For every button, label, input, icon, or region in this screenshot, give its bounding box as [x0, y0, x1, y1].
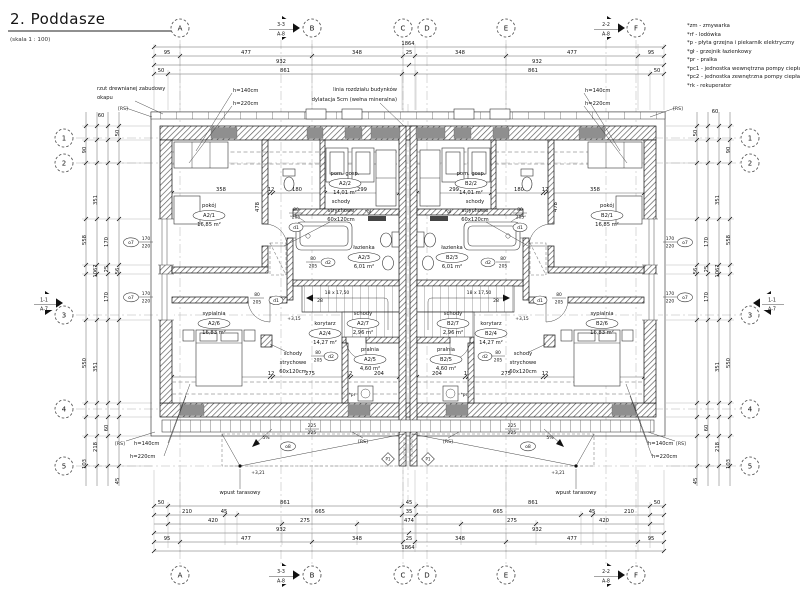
- dim-top-row2-text: 932: [276, 59, 286, 65]
- window-o7-width-text: 170: [666, 236, 675, 242]
- attic-ladder-hatch: [261, 335, 272, 347]
- washing-machine: [358, 386, 373, 401]
- bathroom-radiator: [368, 216, 386, 221]
- room-numbers-b-text: B2/4: [485, 331, 498, 337]
- dim-bottom-row5: 954773482534847795: [164, 536, 655, 542]
- door-height-text: 205: [499, 264, 508, 270]
- height-220-note-text: h=220cm: [233, 101, 258, 107]
- section-sheet-a8-text: A-8: [277, 579, 285, 585]
- dim-right-column-text: 351: [715, 362, 721, 372]
- section-sheet-a8-text: A-8: [602, 32, 610, 38]
- room-names-text: pom. gosp.: [331, 171, 360, 177]
- room-areas-text: 2,96 m²: [353, 330, 373, 336]
- room-areas-text: 6,01 m²: [442, 264, 462, 270]
- attic-stairs-note-2-text: strychowe: [280, 360, 307, 366]
- dim-bottom-row2-text: 210: [624, 509, 634, 515]
- dresser: [616, 196, 642, 224]
- dim-top-row1-text: 477: [241, 50, 251, 56]
- dim-bottom-row3-text: 474: [404, 518, 415, 524]
- window-o8-size-text: 225: [308, 430, 317, 436]
- dim-left-column-text: 218: [93, 442, 99, 452]
- dim-right-column-text: 218: [715, 442, 721, 452]
- equipment-legend-text: *rf - lodówka: [687, 31, 721, 38]
- room-names-text: pokój: [600, 202, 614, 209]
- dim-top-row1-text: 477: [567, 50, 577, 56]
- dim-bottom-row3-text: 275: [507, 518, 517, 524]
- grid-row-labels-text: 3: [748, 312, 752, 320]
- grid-column-labels-text: F: [634, 572, 638, 580]
- grid-row-labels-text: 5: [62, 463, 66, 471]
- dim-left-column-text: 1067: [93, 264, 99, 277]
- equipment-legend: *zm - zmywarka*rf - lodówka*p - płyta gr…: [687, 23, 800, 89]
- section-2-2-text: 2-2: [602, 22, 610, 28]
- party-wall-left: [399, 126, 406, 466]
- dim-bottom-row1-text: 50: [654, 500, 661, 506]
- eaves-note-2-text: okapu: [97, 95, 113, 101]
- dim-bottom-row5-text: 25: [406, 536, 413, 542]
- section-sheet-a7-text: A-7: [768, 307, 776, 313]
- room-numbers-a-text: A2/4: [319, 331, 332, 337]
- dim-bottom-row5-text: 348: [455, 536, 465, 542]
- grid-column-labels-text: A: [178, 25, 183, 33]
- dim-interior-top-text: 12: [542, 187, 549, 193]
- dim-top-row1: 954773482534847795: [164, 50, 655, 56]
- door-width-text: 80: [293, 207, 299, 213]
- grid-column-labels-text: B: [310, 25, 315, 33]
- room-areas-text: 4,60 m²: [360, 366, 380, 372]
- dim-left-column-text: 45: [115, 478, 121, 485]
- door-marker-d1-text: d1: [293, 225, 299, 231]
- dim-interior-top-text: 358: [216, 187, 226, 193]
- washer-tag-text: *pr: [349, 392, 356, 398]
- door-marker-d2-text: d2: [328, 354, 334, 360]
- section-1-1-text: 1-1: [40, 298, 48, 304]
- floor-level-text: +3,15: [287, 316, 301, 322]
- window-o7-height-text: 220: [666, 299, 675, 305]
- grid-column-labels-text: C: [401, 25, 406, 33]
- dim-left-column-text: 56: [115, 268, 121, 275]
- window-o7-height-text: 220: [142, 299, 151, 305]
- attic-stairs-note-3-text: 60x120cm: [461, 217, 488, 223]
- roller-shutter-tag-text: [RS]: [358, 439, 368, 445]
- window-o7-width-text: 170: [666, 291, 675, 297]
- dim-interior-top-text: 358: [590, 187, 600, 193]
- terrace-drain-note-text: wpust tarasowy: [556, 490, 597, 496]
- section-1-1-text: 1-1: [768, 298, 776, 304]
- expansion-joint-note-2-text: dylatacja 5cm (wełna mineralna): [312, 97, 397, 103]
- room-names-text: pralnia: [437, 347, 455, 353]
- window-marker-o7-text: o7: [128, 240, 134, 246]
- room-names-text: pokój: [202, 202, 216, 209]
- stair-going-label-text: 28: [493, 298, 499, 304]
- door-width-text: 80: [556, 292, 562, 298]
- floor-plan-drawing: 2. Poddasze (skala 1 : 100) *zm - zmywar…: [0, 0, 800, 600]
- terrace-panel-label-text: P1: [386, 457, 391, 462]
- attic-stairs-note-3-text: 60x120cm: [509, 369, 536, 375]
- room-names-text: łazienka: [353, 245, 374, 251]
- eaves-note: rzut drewnianej zabudowy: [97, 86, 165, 92]
- door-height-text: 205: [314, 358, 323, 364]
- room-areas-text: 16,83 m²: [202, 330, 226, 336]
- roller-shutter-tag-text: [RS]: [118, 106, 128, 112]
- door-height-text: 205: [253, 300, 262, 306]
- dim-left-column-text: 351: [93, 362, 99, 372]
- door-height-text: 205: [494, 358, 503, 364]
- grid-column-labels-text: C: [401, 572, 406, 580]
- attic-ladder-hatch: [544, 335, 555, 347]
- dim-bottom-row5-text: 477: [567, 536, 577, 542]
- nightstand: [183, 330, 194, 341]
- dim-top-row1-text: 25: [406, 50, 413, 56]
- dim-left-column-text: 550: [82, 358, 88, 368]
- nightstand: [244, 330, 255, 341]
- height-140-note-text: h=140cm: [134, 441, 159, 447]
- washing-machine: [443, 386, 458, 401]
- dim-right-column-text: 25: [704, 266, 710, 273]
- attic-stairs-note-3-text: 60x120cm: [327, 217, 354, 223]
- dim-bottom-row1-text: 50: [158, 500, 165, 506]
- door-marker-d1-text: d1: [273, 298, 279, 304]
- dim-left-column-text: 170: [104, 292, 110, 302]
- window-o7-width-text: 170: [142, 236, 151, 242]
- dim-bottom-row3-text: 420: [599, 518, 609, 524]
- dim-room-height-text: 478: [255, 202, 261, 212]
- towel-radiator-tag-text: *gł: [365, 209, 372, 215]
- dim-right-column-text: 170: [704, 292, 710, 302]
- dim-bottom-total: 1864: [401, 545, 415, 551]
- room-numbers-a-text: A2/7: [357, 321, 369, 327]
- section-sheet-a8-text: A-8: [277, 32, 285, 38]
- equipment-legend-text: *pr - pralka: [687, 57, 717, 63]
- attic-stairs-note-1-text: schody: [514, 351, 532, 357]
- attic-stairs-note-1-text: schody: [284, 351, 302, 357]
- height-140-note-text: h=140cm: [233, 88, 258, 94]
- dim-bottom-total-text: 1864: [401, 545, 415, 551]
- bath-wc-bowl: [425, 233, 436, 247]
- room-numbers-b-text: B2/7: [447, 321, 459, 327]
- roller-shutter-tag-text: [RS]: [443, 439, 453, 445]
- room-areas-text: 14,27 m²: [313, 340, 337, 346]
- room-areas-text: 14,01 m²: [459, 190, 483, 196]
- room-numbers-b-text: B2/2: [465, 181, 477, 187]
- wc-tank: [283, 169, 295, 176]
- door-width-text: 80: [517, 207, 523, 213]
- grid-row-labels-text: 2: [748, 160, 752, 168]
- dim-bottom-row3-text: 275: [300, 518, 310, 524]
- roller-shutter-tag-text: [RS]: [115, 441, 125, 447]
- dim-bottom-row1: 508614586150: [158, 500, 661, 506]
- room-numbers-b-text: B2/3: [446, 255, 458, 261]
- dim-interior-top-text: 299: [357, 187, 367, 193]
- room-names-text: sypialnia: [202, 311, 225, 317]
- height-220-note-text: h=220cm: [585, 101, 610, 107]
- room-numbers-a-text: A2/3: [358, 255, 370, 261]
- section-3-3-text: 3-3: [277, 22, 285, 28]
- dim-top-row2-text: 932: [532, 59, 542, 65]
- wc-bowl: [522, 177, 532, 191]
- dim-top-row1-text: 348: [455, 50, 465, 56]
- grid-column-labels-text: D: [424, 572, 429, 580]
- room-numbers-b-text: B2/5: [440, 357, 452, 363]
- dim-bottom-row4: 932932: [276, 527, 542, 533]
- height-140-note-text: h=140cm: [585, 88, 610, 94]
- scale-note: (skala 1 : 100): [10, 37, 50, 43]
- room-names-text: pom. gosp.: [457, 171, 486, 177]
- dim-right-column-text: 45: [693, 478, 699, 485]
- room-names-text: korytarz: [480, 321, 502, 327]
- room-areas-text: 4,60 m²: [436, 366, 456, 372]
- attic-stairs-note-2-text: strychowe: [510, 360, 537, 366]
- door-marker-d2-text: d2: [482, 354, 488, 360]
- grid-column-labels-text: F: [634, 25, 638, 33]
- washer-tag-text: *pr: [461, 392, 468, 398]
- section-sheet-a8-text: A-8: [602, 579, 610, 585]
- dim-left-column-text: 170: [104, 237, 110, 247]
- nightstand: [561, 330, 572, 341]
- dim-bottom-row3: 420275474275420: [208, 518, 609, 524]
- dim-top-row3-text: 50: [654, 68, 661, 74]
- grid-row-labels-text: 1: [748, 135, 752, 143]
- grid-row-labels-text: 3: [62, 312, 66, 320]
- door-marker-d2-text: d2: [485, 260, 491, 266]
- section-2-2-text: 2-2: [602, 569, 610, 575]
- attic-stairs-note-2-text: strychowe: [462, 208, 489, 214]
- dim-top-row1-text: 95: [164, 50, 171, 56]
- room-areas-text: 2,96 m²: [443, 330, 463, 336]
- window-o7-height-text: 220: [666, 244, 675, 250]
- dim-top-row3-text: 50: [158, 68, 165, 74]
- wardrobe: [588, 142, 642, 168]
- stair-run-label-text: 18 x 17,50: [325, 290, 350, 296]
- attic-stairs-note-3-text: 60x120cm: [279, 369, 306, 375]
- door-height-text: 205: [516, 215, 525, 221]
- dim-interior-bottom-text: 12: [268, 371, 275, 377]
- dim-bottom-row2-text: 210: [182, 509, 192, 515]
- title-block: 2. Poddasze (skala 1 : 100): [8, 10, 186, 43]
- page-title: 2. Poddasze: [10, 10, 105, 28]
- dim-bottom-row1-text: 861: [528, 500, 538, 506]
- equipment-legend-text: *gł - grzejnik łazienkowy: [687, 49, 752, 55]
- equipment-legend-text: *zm - zmywarka: [687, 23, 730, 29]
- room-areas-text: 6,01 m²: [354, 264, 374, 270]
- dim-top-row3-text: 861: [528, 68, 538, 74]
- window-marker-o8-text: o8: [525, 444, 531, 450]
- window-o7-width-text: 170: [142, 291, 151, 297]
- dim-bottom-row5-text: 348: [352, 536, 362, 542]
- dim-interior-top-text: 180: [514, 187, 524, 193]
- expansion-joint-note-text: linia rozdziału budynków: [333, 86, 398, 93]
- stair-run-label-text: 18 x 17,50: [467, 290, 492, 296]
- dim-left-column-text: 50: [115, 130, 121, 137]
- dim-bottom-row2-text: 665: [315, 509, 325, 515]
- room-names-text: schody: [354, 311, 372, 317]
- eaves-note-text: rzut drewnianej zabudowy: [97, 86, 165, 92]
- dim-bottom-row2-text: 45: [221, 509, 228, 515]
- dim-left-column-text: 90: [82, 147, 88, 154]
- dim-right-column-text: 60: [712, 109, 719, 115]
- dim-bottom-row4-text: 932: [276, 527, 286, 533]
- dim-interior-top-text: 180: [292, 187, 302, 193]
- room-numbers-a-text: A2/2: [339, 181, 351, 187]
- dim-interior-top-text: 12: [268, 187, 275, 193]
- room-names-text: sypialnia: [590, 311, 613, 317]
- door-width-text: 80: [254, 292, 260, 298]
- room-areas-text: 16,85 m²: [595, 222, 619, 228]
- attic-stairs-note-1-text: schody: [332, 199, 350, 205]
- door-height-text: 205: [309, 264, 318, 270]
- roller-shutter-tag-text: [RS]: [673, 106, 683, 112]
- grid-column-labels-text: E: [504, 572, 508, 580]
- bath-wc-bowl: [381, 233, 392, 247]
- dim-top-row2: 932932: [276, 59, 542, 65]
- slope-label-text: 5%: [262, 435, 270, 441]
- dim-left-column-text: 351: [93, 195, 99, 205]
- grid-row-labels-text: 5: [748, 463, 752, 471]
- dim-interior-top-text: 299: [449, 187, 459, 193]
- dim-left-column-text: 558: [82, 235, 88, 245]
- roller-shutter-tag-text: [RS]: [676, 441, 686, 447]
- door-height-text: 205: [555, 300, 564, 306]
- window-marker-o8-text: o8: [285, 444, 291, 450]
- dim-bottom-row1-text: 45: [406, 500, 413, 506]
- dim-bottom-row5-text: 477: [241, 536, 251, 542]
- height-220-note-text: h=220cm: [130, 454, 155, 460]
- dim-bottom-row2-text: 665: [493, 509, 503, 515]
- dim-right-column-text: 170: [704, 237, 710, 247]
- grid-row-labels-text: 1: [62, 135, 66, 143]
- room-numbers-b-text: B2/1: [601, 213, 613, 219]
- dim-left-column: 6050903515581702510671705503516021810345…: [82, 113, 121, 484]
- room-names-text: schody: [444, 311, 462, 317]
- equipment-legend-text: *pc2 - jednostka zewnętrzna pompy ciepła: [687, 74, 800, 80]
- dim-interior-bottom-text: 12: [542, 371, 549, 377]
- terrace-level-text: +3,21: [551, 470, 565, 476]
- grid-row-labels-text: 4: [62, 406, 67, 414]
- slope-label-text: 5%: [546, 435, 554, 441]
- room-numbers-a-text: A2/6: [208, 321, 220, 327]
- dim-top-total-text: 1864: [401, 41, 415, 47]
- dim-right-column-text: 103: [726, 459, 732, 469]
- room-numbers-a-text: A2/5: [364, 357, 376, 363]
- section-3-3-text: 3-3: [277, 569, 285, 575]
- party-wall-right: [410, 126, 417, 466]
- dim-bottom-row3-text: 420: [208, 518, 218, 524]
- door-width-text: 80: [500, 256, 506, 262]
- window-marker-o7-text: o7: [682, 295, 688, 301]
- door-marker-d2-text: d2: [325, 260, 331, 266]
- grid-column-labels-text: A: [178, 572, 183, 580]
- floor-level-text: +3,15: [515, 316, 529, 322]
- grid-column-labels-text: B: [310, 572, 315, 580]
- room-areas-text: 16,85 m²: [197, 222, 221, 228]
- window-o8-size-text: 225: [308, 423, 317, 429]
- window-o7-height-text: 220: [142, 244, 151, 250]
- dim-bottom-row4-text: 932: [532, 527, 542, 533]
- terrace-panel-label-text: P1: [426, 457, 431, 462]
- bathroom-radiator: [430, 216, 448, 221]
- stair-going-label-text: 28: [317, 298, 323, 304]
- room-names-text: pralnia: [361, 347, 379, 353]
- room-numbers-b-text: B2/6: [596, 321, 608, 327]
- dim-left-column-text: 60: [98, 113, 105, 119]
- dim-top-row1-text: 348: [352, 50, 362, 56]
- expansion-joint-note-2: dylatacja 5cm (wełna mineralna): [312, 97, 397, 103]
- washbasin: [383, 256, 394, 270]
- dim-right-column-text: 90: [726, 147, 732, 154]
- window-o8-size-text: 225: [508, 423, 517, 429]
- wc-tank: [521, 169, 533, 176]
- attic-stairs-note-2-text: strychowe: [328, 208, 355, 214]
- dresser: [174, 196, 200, 224]
- dim-right-column-text: 60: [704, 425, 710, 432]
- washbasin: [423, 256, 434, 270]
- dim-top-row3-text: 861: [280, 68, 290, 74]
- expansion-joint-note: linia rozdziału budynków: [333, 86, 398, 93]
- dim-top-total: 1864: [401, 41, 415, 47]
- equipment-legend-text: *rk - rekuperator: [687, 83, 732, 89]
- dim-bottom-row2: 210456653566545210: [182, 509, 634, 515]
- window-o8-size-text: 225: [508, 430, 517, 436]
- wc-bowl: [284, 177, 294, 191]
- bath-wc-tank: [392, 232, 399, 247]
- dim-right-column-text: 351: [715, 195, 721, 205]
- terrace-drain-note-text: wpust tarasowy: [220, 490, 261, 496]
- dim-left-column-text: 25: [104, 266, 110, 273]
- grid-row-labels-text: 2: [62, 160, 66, 168]
- window-marker-o7-text: o7: [128, 295, 134, 301]
- dim-right-column-text: 550: [726, 358, 732, 368]
- section-sheet-a7-text: A-7: [40, 307, 48, 313]
- bath-wc-tank: [417, 232, 424, 247]
- room-areas-text: 14,27 m²: [479, 340, 503, 346]
- height-140-note-text: h=140cm: [648, 441, 673, 447]
- grid-column-labels-text: E: [504, 25, 508, 33]
- dim-left-column-text: 103: [82, 459, 88, 469]
- dim-bottom-row2-text: 35: [406, 509, 413, 515]
- roof-eaves-band: [151, 112, 665, 119]
- terrace-level-text: +3,21: [251, 470, 265, 476]
- dim-bottom-row1-text: 861: [280, 500, 290, 506]
- wardrobe: [174, 142, 228, 168]
- dim-bottom-row5-text: 95: [164, 536, 171, 542]
- dim-right-column-text: 1067: [715, 264, 721, 277]
- equipment-legend-text: *p - płyta grzejna i piekarnik elektrycz…: [687, 40, 794, 46]
- eaves-note-2: okapu: [97, 95, 113, 101]
- dim-top-row1-text: 95: [648, 50, 655, 56]
- dim-left-column-text: 60: [104, 425, 110, 432]
- nightstand: [622, 330, 633, 341]
- dim-right-column-text: 558: [726, 235, 732, 245]
- terrace-deck-band: [162, 420, 654, 432]
- attic-stairs-note-1-text: schody: [466, 199, 484, 205]
- door-width-text: 80: [495, 350, 501, 356]
- dim-top-row3: 5086186150: [158, 68, 661, 74]
- grid-row-labels-text: 4: [748, 406, 753, 414]
- door-width-text: 80: [310, 256, 316, 262]
- dim-bottom-row5-text: 95: [648, 536, 655, 542]
- grid-column-labels-text: D: [424, 25, 429, 33]
- room-numbers-a-text: A2/1: [203, 213, 215, 219]
- dim-bottom-row2-text: 45: [589, 509, 596, 515]
- window-marker-o7-text: o7: [682, 240, 688, 246]
- room-areas-text: 16,83 m²: [590, 330, 614, 336]
- room-names-text: korytarz: [314, 321, 336, 327]
- drawing-sheet: 2. Poddasze (skala 1 : 100) *zm - zmywar…: [0, 0, 800, 600]
- dim-right-column-text: 50: [693, 130, 699, 137]
- height-220-note-text: h=220cm: [652, 454, 677, 460]
- equipment-legend-text: *pc1 - jednostka wewnętrzna pompy ciepła: [687, 66, 800, 72]
- dim-right-column-text: 56: [693, 268, 699, 275]
